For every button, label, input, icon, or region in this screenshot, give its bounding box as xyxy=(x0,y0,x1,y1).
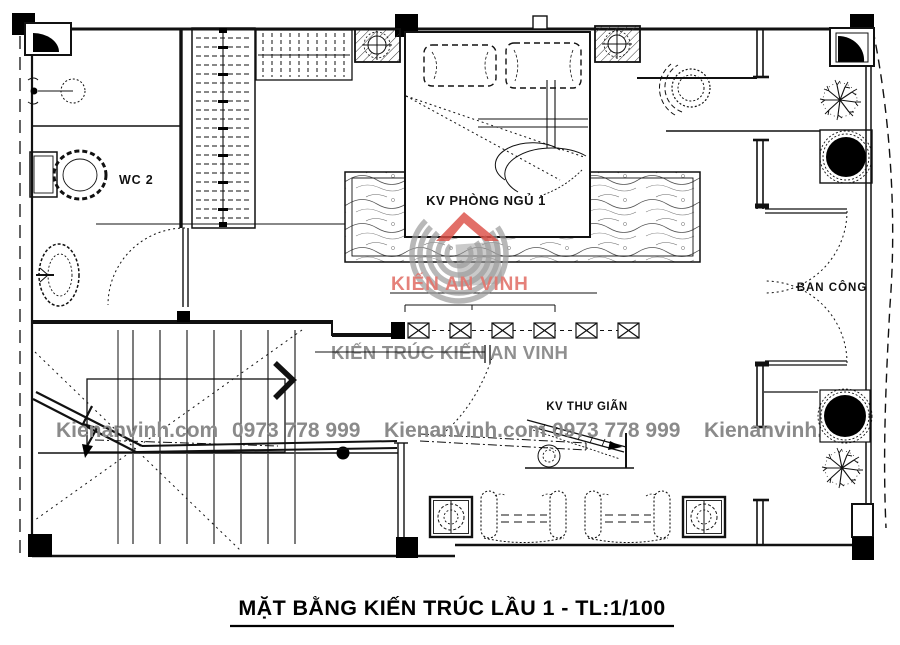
balcony-label: BAN CÔNG xyxy=(797,281,868,294)
armchair xyxy=(585,491,670,543)
sink-icon xyxy=(36,244,79,306)
watermark-website: Kienanvinh.com xyxy=(56,419,218,442)
floor-plan-page: KIẾN AN VINH Kienanvinh.com 0973 778 999… xyxy=(0,0,900,645)
title-block: MẶT BẰNG KIẾN TRÚC LẦU 1 - TL:1/100 xyxy=(230,595,674,626)
stair-railing xyxy=(391,322,639,339)
bedroom-label: KV PHÒNG NGỦ 1 xyxy=(426,193,546,208)
armchair xyxy=(481,491,566,543)
water-heater-icon xyxy=(25,23,71,55)
side-table xyxy=(683,497,725,537)
watermark-phone: 0973 778 999 xyxy=(232,419,360,442)
logo-text: KIẾN AN VINH xyxy=(391,273,529,295)
floor-plan-drawing: KIẾN AN VINH Kienanvinh.com 0973 778 999… xyxy=(0,0,900,645)
wardrobe-horizontal xyxy=(256,30,352,80)
wall-switch xyxy=(533,16,547,29)
wardrobe-vertical xyxy=(192,28,255,228)
watermark-website: Kienanvinh.com xyxy=(384,419,546,442)
tree-icon xyxy=(822,448,863,488)
page-title: MẶT BẰNG KIẾN TRÚC LẦU 1 - TL:1/100 xyxy=(238,595,665,620)
sofa-set xyxy=(430,491,725,543)
ceiling-light-left xyxy=(355,29,400,62)
shower-icon xyxy=(28,78,85,104)
wc-room-label: WC 2 xyxy=(119,173,153,187)
watermark-phone: 0973 778 999 xyxy=(552,419,680,442)
watermark-row: Kienanvinh.com 0973 778 999 Kienanvinh.c… xyxy=(56,419,866,442)
toilet-icon xyxy=(30,151,106,199)
wc-fixtures xyxy=(25,23,106,306)
round-chair xyxy=(659,64,710,115)
wc-door xyxy=(108,228,190,322)
heater-box-top-right xyxy=(830,28,874,66)
tree-icon xyxy=(820,80,861,120)
ceiling-light-right xyxy=(595,26,640,62)
side-table xyxy=(430,497,472,537)
relax-area-label: KV THƯ GIÃN xyxy=(546,400,628,413)
stair-void-lines xyxy=(390,293,597,312)
